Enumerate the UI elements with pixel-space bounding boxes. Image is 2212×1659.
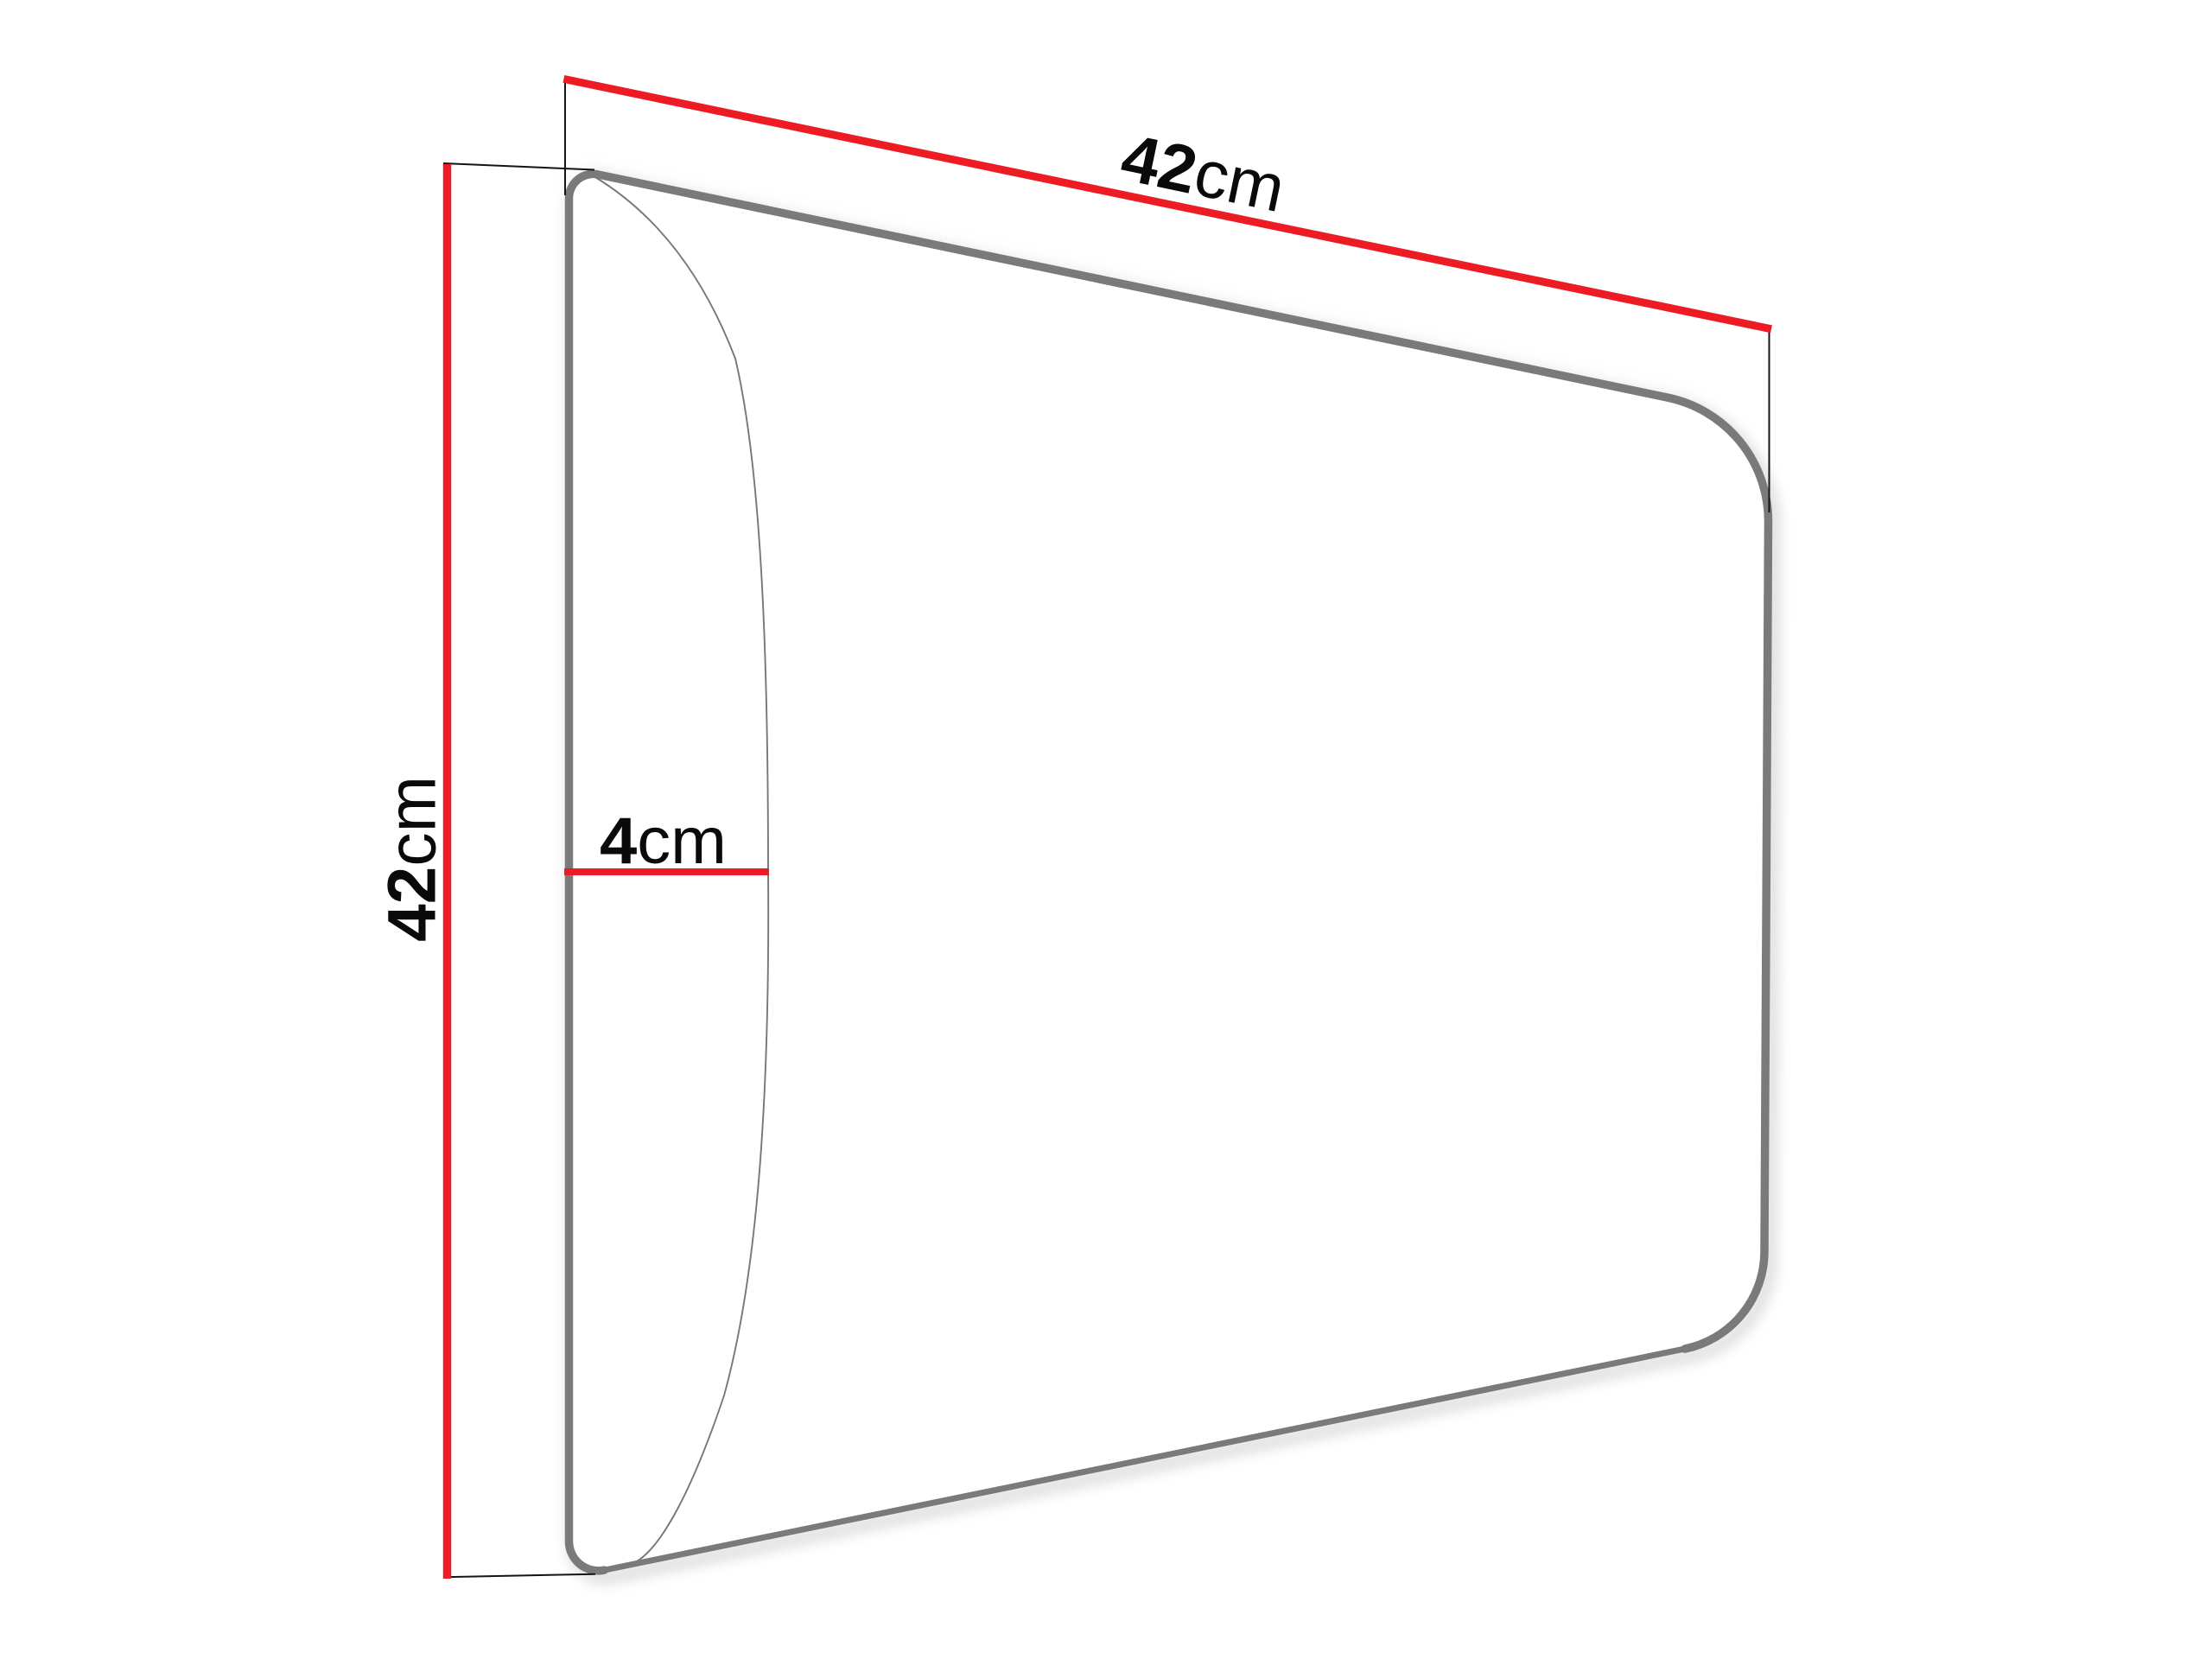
svg-text:42cm: 42cm xyxy=(373,776,450,942)
svg-text:4cm: 4cm xyxy=(600,804,727,878)
